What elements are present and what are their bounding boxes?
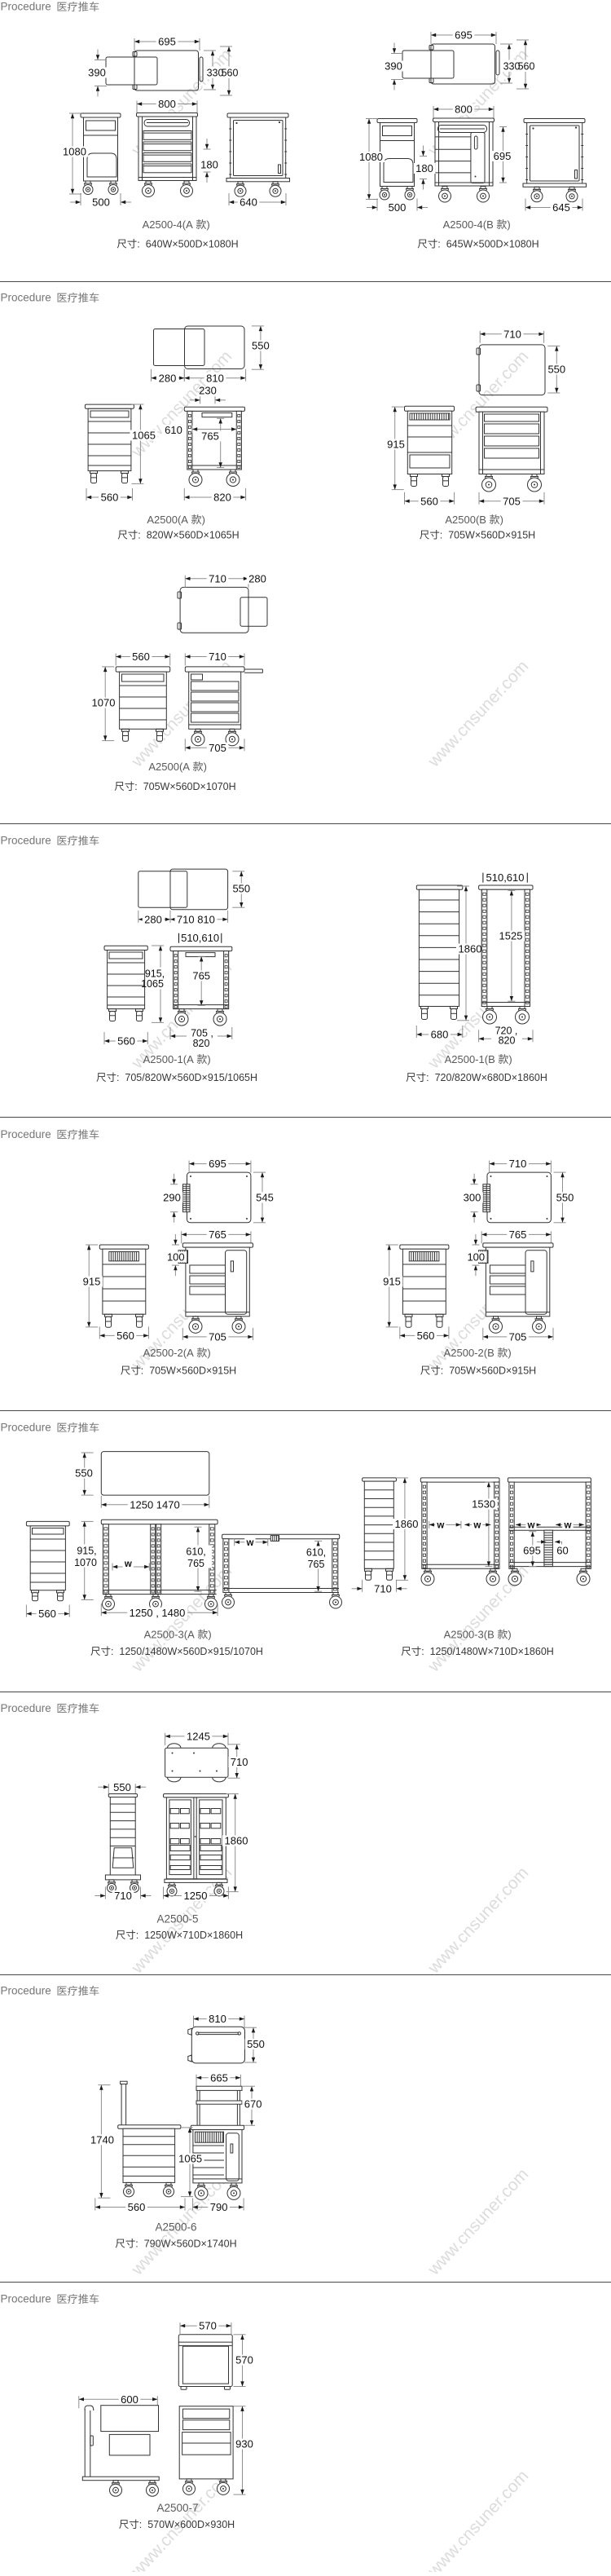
svg-text:915: 915 [387,439,405,451]
svg-text:): ) [508,1053,512,1065]
svg-text:): ) [507,218,510,231]
svg-text::: : [136,1930,138,1941]
svg-text:710: 710 [114,1890,132,1902]
svg-text:510,610: 510,610 [486,871,525,884]
svg-text:1250: 1250 [184,1890,208,1902]
svg-text:180: 180 [200,159,218,171]
svg-text:): ) [207,1053,210,1065]
svg-text:915,: 915, [77,1546,96,1557]
svg-text::: : [441,1365,443,1377]
svg-text:705: 705 [209,742,226,754]
svg-text:610,: 610, [186,1546,205,1558]
svg-text:A2500-7: A2500-7 [156,2502,198,2514]
svg-text:500: 500 [92,196,110,209]
svg-text:545: 545 [256,1192,274,1204]
svg-text:710: 710 [209,572,226,584]
svg-text:550: 550 [556,1192,574,1204]
svg-text:w: w [527,1521,535,1531]
svg-text:): ) [206,218,209,231]
svg-text:): ) [204,761,207,773]
svg-text:705: 705 [509,1331,527,1343]
svg-text:1250 , 1480: 1250 , 1480 [130,1607,186,1619]
svg-text:765: 765 [192,970,210,982]
svg-text:915: 915 [83,1276,101,1288]
svg-text:570W×600D×930H: 570W×600D×930H [147,2519,235,2530]
svg-text:560: 560 [128,2201,146,2213]
svg-text:645W×500D×1080H: 645W×500D×1080H [446,239,539,250]
svg-text::: : [141,1365,143,1377]
svg-text:1080: 1080 [63,146,86,158]
svg-text:w: w [246,1538,254,1548]
svg-text:820: 820 [193,1038,210,1049]
svg-text:570: 570 [199,2320,217,2332]
svg-text:1070: 1070 [92,697,116,709]
svg-text:560: 560 [101,492,119,504]
svg-text:180: 180 [415,162,433,174]
svg-text:w: w [124,1559,132,1569]
svg-text:1080: 1080 [359,151,383,163]
svg-text:A2500-2(B: A2500-2(B [444,1347,495,1359]
svg-text:550: 550 [75,1467,93,1480]
svg-text::: : [421,1646,424,1657]
svg-text:640: 640 [240,196,257,209]
svg-text:645: 645 [552,201,570,214]
svg-text:A2500-3(A: A2500-3(A [144,1629,195,1641]
svg-text:Procedure: Procedure [1,1422,51,1434]
svg-text:A2500-1(A: A2500-1(A [143,1053,194,1065]
svg-text:w: w [473,1521,481,1531]
svg-text:695: 695 [455,29,473,42]
svg-text:705W×560D×915H: 705W×560D×915H [149,1365,236,1377]
svg-text::: : [437,239,440,250]
svg-text:570: 570 [235,2354,253,2366]
svg-text::: : [139,2519,142,2530]
svg-text::: : [111,1646,113,1657]
svg-text:705W×560D×915H: 705W×560D×915H [449,1365,536,1377]
svg-text:100: 100 [467,1251,485,1264]
svg-text:710: 710 [374,1582,392,1595]
svg-text:710: 710 [509,1158,527,1170]
svg-text:A2500(A: A2500(A [148,761,190,773]
svg-text:695: 695 [158,36,176,48]
svg-text:610: 610 [165,424,182,436]
svg-text::: : [440,530,442,541]
svg-text:705W×560D×1070H: 705W×560D×1070H [143,781,236,792]
svg-text:820: 820 [213,492,231,504]
svg-text:800: 800 [455,104,473,116]
svg-text:): ) [207,1347,210,1359]
svg-text:1250/1480W×560D×915/1070H: 1250/1480W×560D×915/1070H [119,1646,263,1657]
svg-text:560: 560 [222,68,239,79]
svg-text:705: 705 [503,495,521,507]
svg-text:100: 100 [167,1251,185,1264]
svg-text:710: 710 [503,328,521,340]
svg-text:Procedure: Procedure [1,1985,51,1997]
svg-text:1065: 1065 [132,430,156,442]
svg-text:A2500(A: A2500(A [147,514,188,526]
svg-text:390: 390 [88,67,106,79]
svg-text::: : [116,1072,119,1083]
svg-text:A2500-5: A2500-5 [156,1913,198,1925]
svg-text:695: 695 [494,150,512,162]
svg-text::: : [138,530,140,541]
svg-text:): ) [508,1347,511,1359]
svg-text:560: 560 [132,651,150,663]
svg-text::: : [135,2239,138,2250]
svg-text:Procedure: Procedure [1,1128,51,1140]
svg-text:A2500-6: A2500-6 [155,2221,196,2234]
svg-text:230: 230 [199,385,217,397]
svg-text:60: 60 [556,1545,568,1557]
svg-text:1860: 1860 [459,943,482,955]
svg-text:1250/1480W×710D×1860H: 1250/1480W×710D×1860H [430,1646,554,1657]
svg-text:): ) [202,514,205,526]
svg-text::: : [134,781,137,792]
svg-text:A2500-4(B: A2500-4(B [443,218,494,231]
svg-text:640W×500D×1080H: 640W×500D×1080H [146,239,239,250]
svg-text:800: 800 [158,98,176,110]
svg-text:765: 765 [209,1228,226,1241]
svg-text:280: 280 [144,913,162,925]
svg-text:1740: 1740 [90,2133,114,2146]
svg-text:1530: 1530 [472,1498,495,1511]
svg-text:A2500(B: A2500(B [445,514,486,526]
svg-text:A2500-2(A: A2500-2(A [143,1347,194,1359]
svg-text:560: 560 [518,61,535,73]
svg-text:500: 500 [389,201,407,214]
svg-text:915: 915 [383,1276,401,1288]
svg-text:A2500-3(B: A2500-3(B [444,1629,495,1641]
svg-text:290: 290 [163,1192,181,1204]
svg-text:550: 550 [247,2038,265,2050]
svg-text:1860: 1860 [395,1518,419,1530]
svg-text:670: 670 [244,2098,262,2111]
svg-text:1065: 1065 [141,978,164,990]
svg-text::: : [137,239,139,250]
svg-text:w: w [436,1521,444,1531]
svg-text:790: 790 [210,2201,228,2213]
svg-text:720/820W×680D×1860H: 720/820W×680D×1860H [435,1072,547,1083]
svg-text:765: 765 [308,1559,325,1570]
svg-text:Procedure: Procedure [1,2293,51,2305]
svg-text:710: 710 [231,1756,248,1768]
svg-text:w: w [564,1521,572,1531]
svg-text:550: 550 [252,340,270,352]
svg-text:610,: 610, [306,1547,326,1559]
svg-text:): ) [208,1629,211,1641]
svg-text:1065: 1065 [178,2153,202,2165]
svg-text:695: 695 [209,1158,226,1170]
svg-text:280: 280 [248,572,266,584]
svg-text:1070: 1070 [74,1557,97,1568]
svg-text:1525: 1525 [499,930,523,942]
svg-text:560: 560 [117,1035,135,1048]
svg-text:560: 560 [38,1608,56,1620]
svg-text:Procedure: Procedure [1,1,51,13]
svg-text:300: 300 [464,1192,481,1204]
svg-text:550: 550 [113,1781,131,1793]
svg-text:710: 710 [209,651,226,663]
svg-text:560: 560 [116,1330,134,1342]
svg-text:705W×560D×915H: 705W×560D×915H [448,530,535,541]
svg-text:820W×560D×1065H: 820W×560D×1065H [147,530,240,541]
svg-text:1860: 1860 [225,1835,248,1847]
svg-text:560: 560 [420,495,438,507]
svg-text:550: 550 [232,883,250,895]
svg-text:665: 665 [210,2071,228,2084]
svg-text:): ) [500,514,503,526]
svg-text:1250 1470: 1250 1470 [130,1498,179,1511]
svg-text:1250W×710D×1860H: 1250W×710D×1860H [144,1930,243,1941]
svg-text:550: 550 [547,364,565,376]
svg-text:705: 705 [209,1331,226,1343]
svg-text:790W×560D×1740H: 790W×560D×1740H [144,2239,237,2250]
svg-text:765: 765 [201,430,219,443]
svg-text:510,610: 510,610 [181,932,219,944]
svg-text:Procedure: Procedure [1,1702,51,1714]
svg-text:Procedure: Procedure [1,292,51,304]
svg-text:705/820W×560D×915/1065H: 705/820W×560D×915/1065H [125,1072,257,1083]
svg-text::: : [426,1072,429,1083]
svg-text:765: 765 [187,1558,204,1569]
svg-text:390: 390 [385,60,402,73]
svg-text:810: 810 [209,2013,226,2025]
svg-text:600: 600 [121,2393,138,2406]
svg-text:A2500-1(B: A2500-1(B [445,1053,495,1065]
svg-text:680: 680 [431,1029,449,1041]
svg-text:Procedure: Procedure [1,835,51,847]
svg-text:280: 280 [159,372,177,384]
svg-text:A2500-4(A: A2500-4(A [143,218,193,231]
svg-text:710 810: 710 810 [177,913,215,925]
svg-text:820: 820 [499,1035,516,1047]
svg-text:930: 930 [235,2438,253,2450]
svg-text:695: 695 [523,1545,541,1557]
svg-text:1245: 1245 [187,1731,210,1743]
svg-text:810: 810 [206,372,224,384]
svg-text:560: 560 [417,1330,435,1342]
svg-text:): ) [508,1629,511,1641]
svg-text:765: 765 [509,1228,527,1241]
